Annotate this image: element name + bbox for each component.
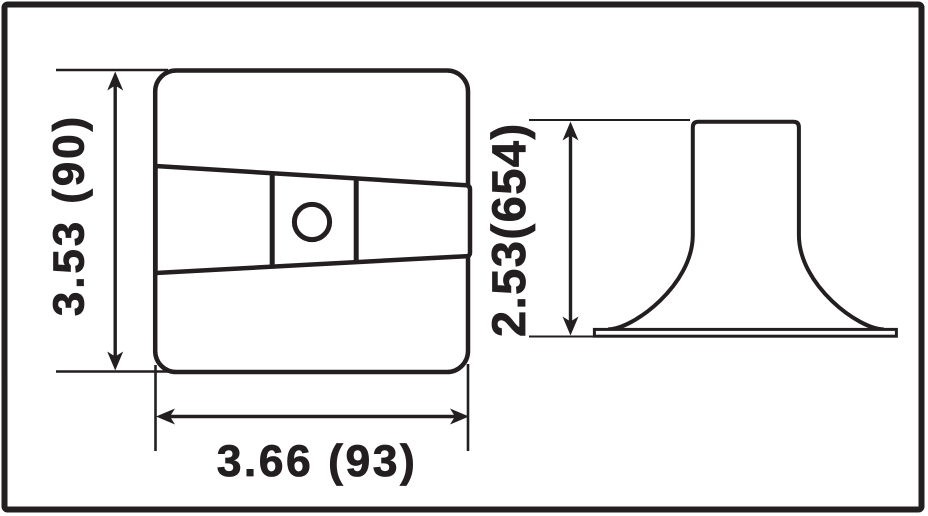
svg-text:2.53(654): 2.53(654) — [482, 122, 535, 337]
svg-text:3.53 (90): 3.53 (90) — [45, 114, 94, 316]
svg-text:3.66 (93): 3.66 (93) — [217, 437, 418, 486]
